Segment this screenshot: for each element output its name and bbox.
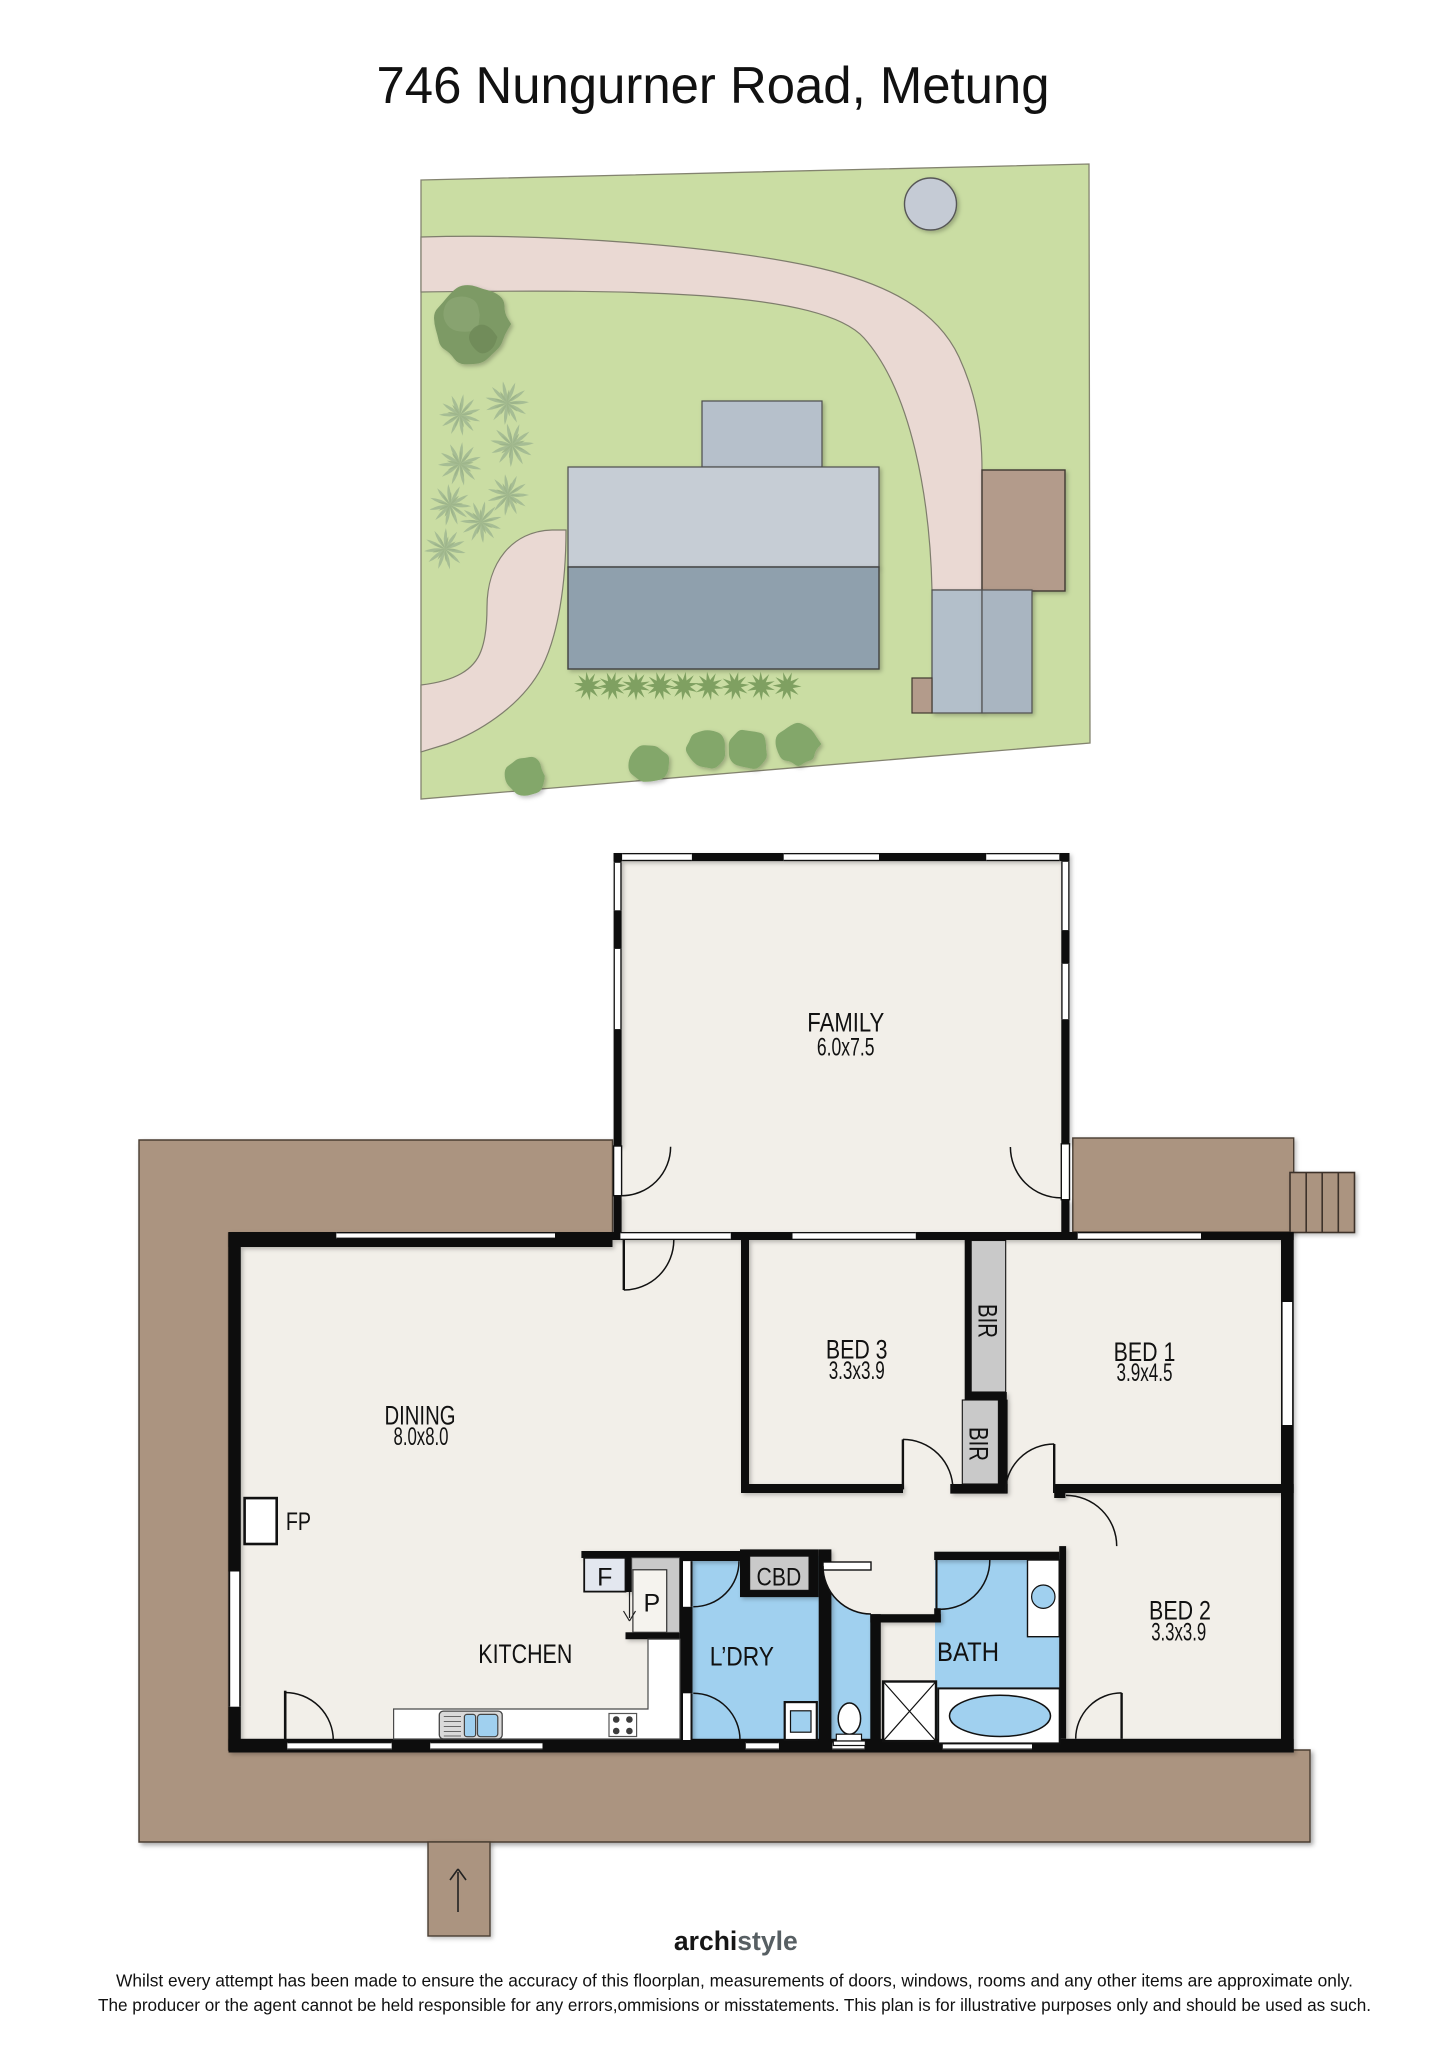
svg-text:KITCHEN: KITCHEN <box>478 1639 572 1669</box>
svg-text:746 Nungurner Road, Metung: 746 Nungurner Road, Metung <box>377 57 1050 115</box>
svg-text:BIR: BIR <box>973 1304 1003 1338</box>
svg-text:BIR: BIR <box>964 1427 994 1461</box>
svg-text:F: F <box>597 1563 612 1591</box>
svg-text:CBD: CBD <box>757 1563 802 1591</box>
svg-text:3.3x3.9: 3.3x3.9 <box>829 1357 885 1385</box>
svg-text:BATH: BATH <box>937 1637 999 1667</box>
svg-text:The producer or the agent cann: The producer or the agent cannot be held… <box>98 1995 1371 2015</box>
svg-text:FP: FP <box>286 1508 311 1536</box>
svg-text:Whilst every attempt has been: Whilst every attempt has been made to en… <box>116 1971 1353 1991</box>
svg-text:3.9x4.5: 3.9x4.5 <box>1117 1359 1173 1387</box>
svg-text:P: P <box>643 1590 660 1618</box>
svg-text:archistyle: archistyle <box>674 1926 798 1956</box>
svg-text:3.3x3.9: 3.3x3.9 <box>1151 1618 1206 1646</box>
svg-text:6.0x7.5: 6.0x7.5 <box>817 1033 875 1061</box>
svg-text:L’DRY: L’DRY <box>710 1641 774 1671</box>
svg-text:8.0x8.0: 8.0x8.0 <box>394 1423 449 1451</box>
